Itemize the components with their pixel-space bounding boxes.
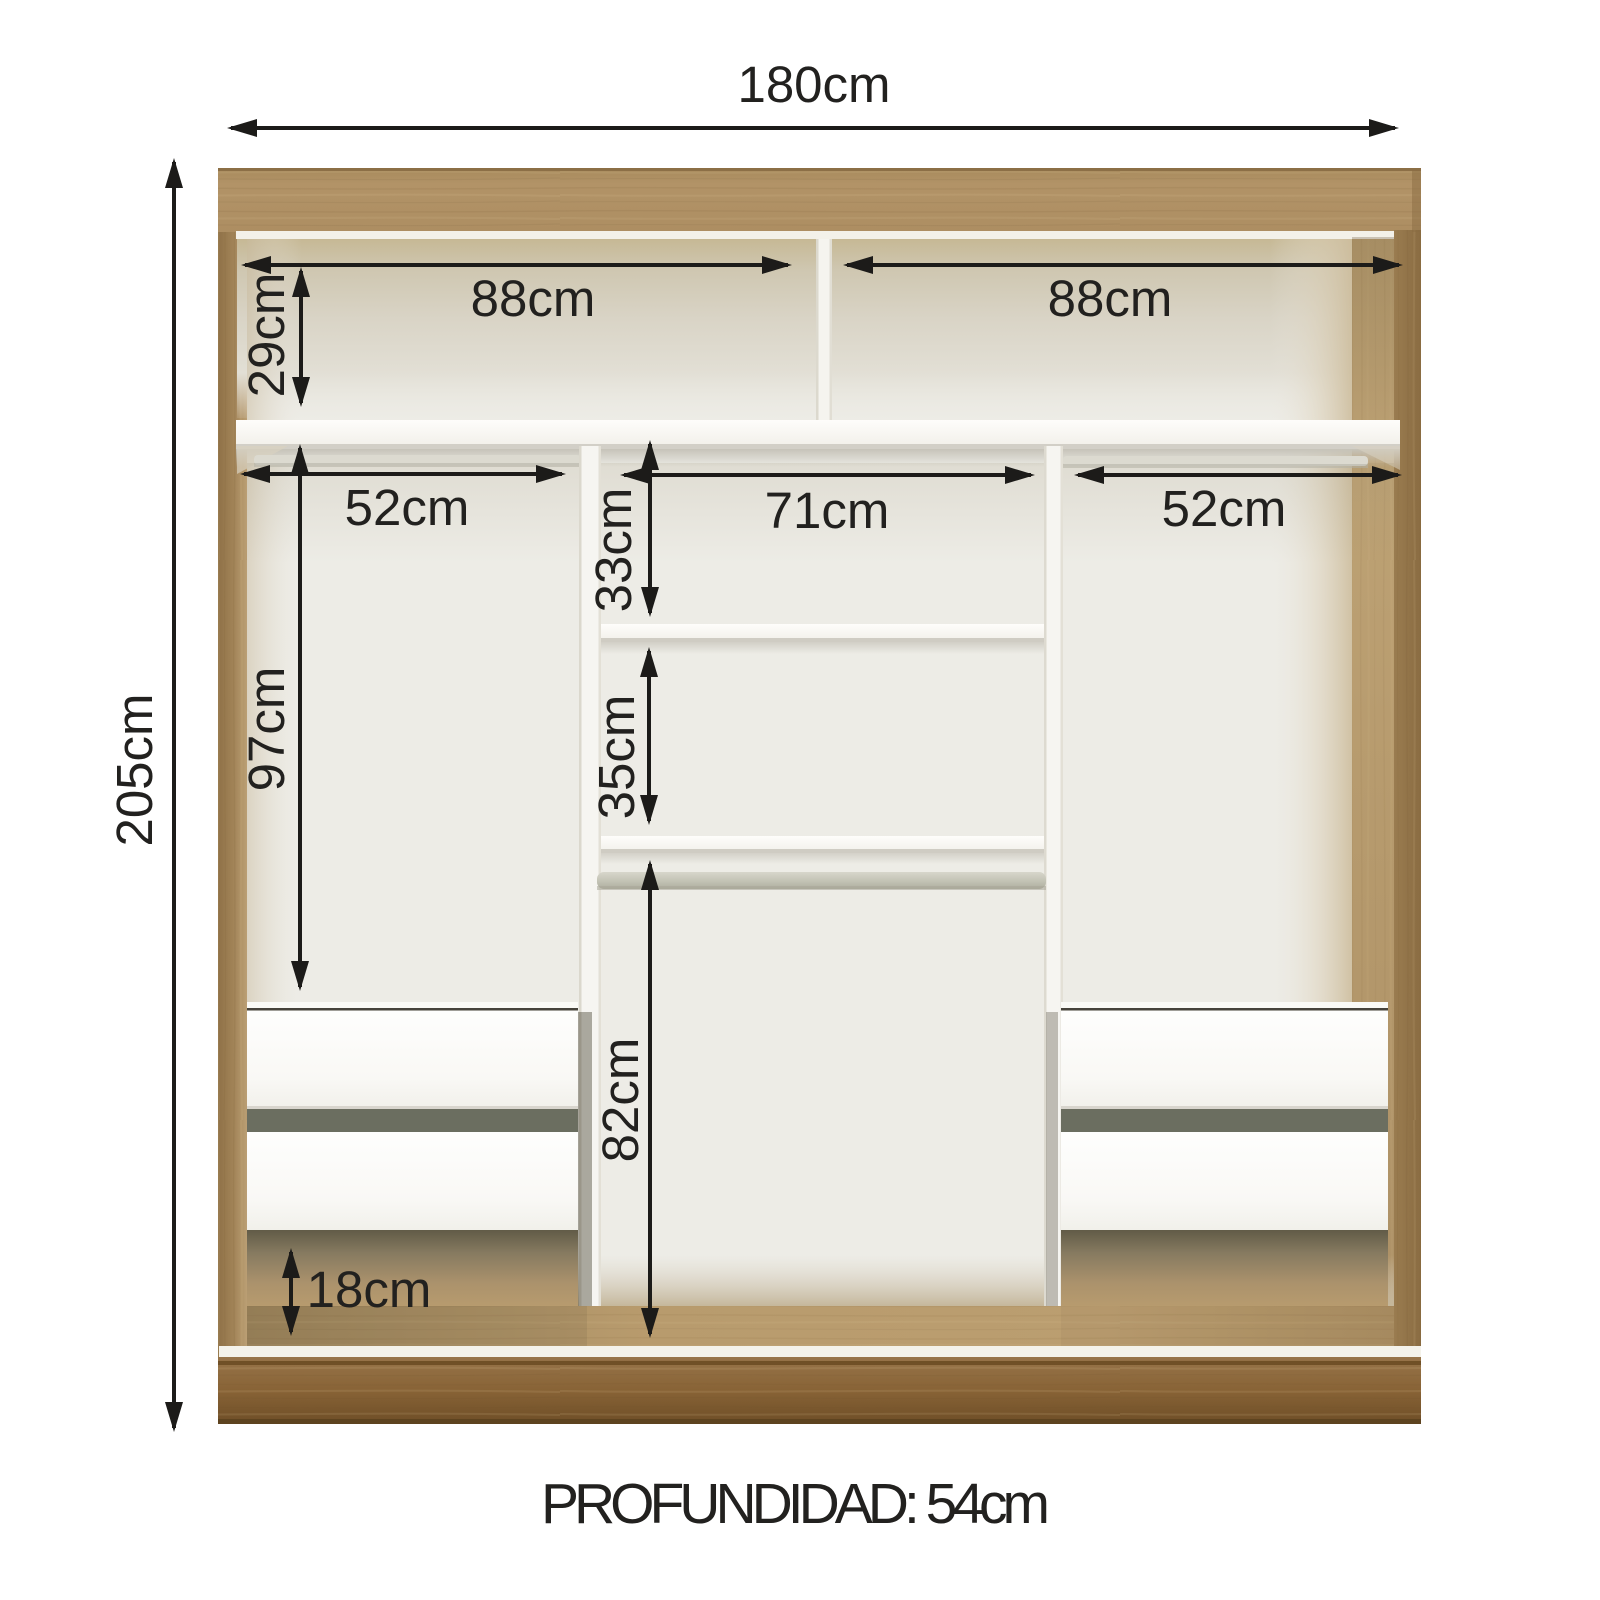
svg-text:180cm: 180cm — [737, 56, 890, 113]
svg-text:33cm: 33cm — [585, 488, 642, 613]
svg-text:PROFUNDIDAD: 54cm: PROFUNDIDAD: 54cm — [541, 1472, 1047, 1536]
svg-text:88cm: 88cm — [471, 270, 596, 327]
svg-text:35cm: 35cm — [588, 695, 645, 820]
svg-text:97cm: 97cm — [238, 667, 295, 792]
svg-text:52cm: 52cm — [345, 479, 470, 536]
svg-text:88cm: 88cm — [1048, 270, 1173, 327]
svg-text:71cm: 71cm — [765, 482, 890, 539]
svg-text:205cm: 205cm — [106, 693, 163, 846]
svg-text:18cm: 18cm — [307, 1261, 432, 1318]
svg-text:29cm: 29cm — [238, 273, 295, 398]
svg-text:82cm: 82cm — [592, 1038, 649, 1163]
svg-text:52cm: 52cm — [1162, 480, 1287, 537]
